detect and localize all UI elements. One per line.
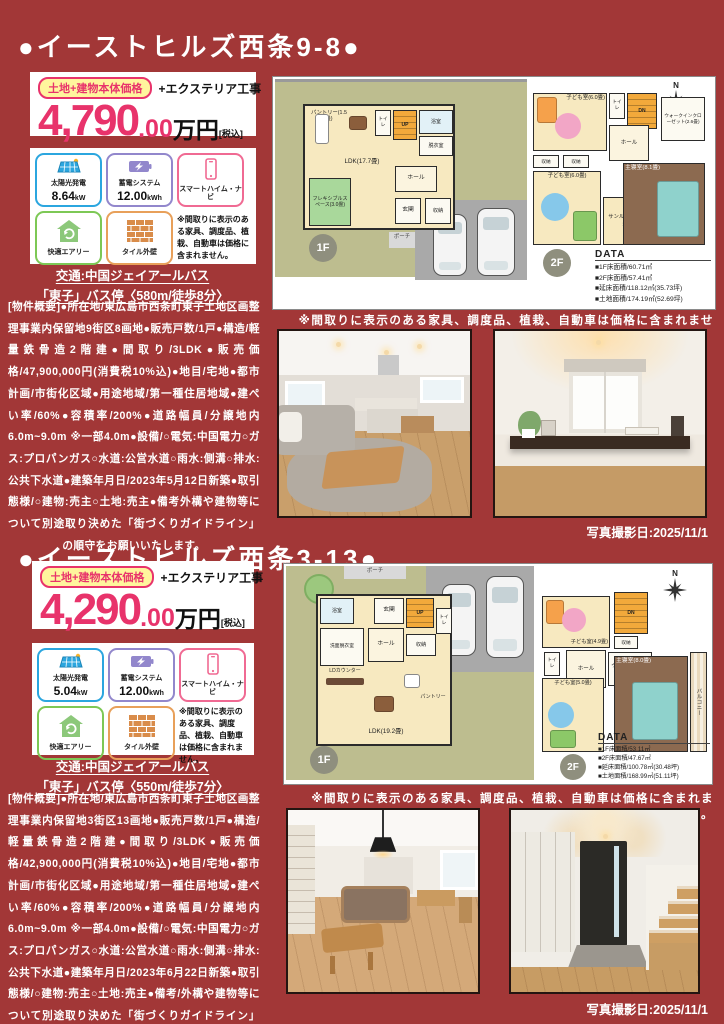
room-porch: ポーチ [344,566,406,579]
solar-label: 太陽光発電 [53,675,88,683]
stair-step [668,901,698,914]
feature-card-2: 太陽光発電 5.04kW 蓄電システム 12.00kWh スマートハイム・ナビ … [32,643,254,755]
battery-tile: 蓄電システム 12.00kWh [108,648,175,702]
price-plus-label: +エクステリア工事 [158,80,261,97]
price-amount: 4,790 [38,100,138,142]
data-title: DATA [598,732,710,744]
smart-navi-label: スマートハイム・ナビ [179,186,242,202]
room-storage-2f: 収納 [614,636,638,649]
room-ldk: LDK(17.7畳) [335,158,389,166]
stair-step [649,930,698,943]
smartphone-icon [205,653,221,680]
room-bath: 浴室 [320,598,354,624]
room-porch: ポーチ [389,232,415,248]
tile-wall-tile: タイル外壁 [106,211,173,265]
window [420,377,464,403]
room-entrance: 玄関 [395,198,421,224]
stair-step [659,916,698,929]
price-plus-label: +エクステリア工事 [160,569,263,586]
floorplan-panel-1: パントリー(1.5畳) UP トイレ 浴室 脱衣室 LDK(17.7畳) フレキ… [272,76,716,310]
throw-blanket [279,412,302,442]
feature-card-1: 太陽光発電 8.64kW 蓄電システム 12.00kWh スマートハイム・ナビ … [30,148,256,264]
price-unit: 万円 [175,607,221,631]
dining-table-icon [374,696,394,712]
battery-value: 12.00 [119,684,149,698]
floor2-badge: 2F [560,754,586,780]
room-hall-2f: ホール [609,125,649,161]
desk-counter [510,436,691,449]
room-washroom: 洗面脱衣室 [320,628,364,666]
price-decimal: .00 [138,117,173,142]
entrance-door [580,841,627,947]
section1-title: ●イーストヒルズ西条9-8● [18,27,362,64]
price-tax-label: [税込] [219,127,243,140]
price-amount: 4,290 [40,589,140,631]
window-frame [604,372,606,433]
pendant-cord [382,810,384,839]
data-box-2: DATA ■1F床面積/53.11㎡ ■2F床面積/47.67㎡ ■延床面積/1… [598,732,710,782]
coffee-table [321,446,405,490]
dining-table [417,890,455,906]
transit-line1: 交通:中国ジェイアールバス [5,266,260,286]
plant-pot [522,429,535,438]
airy-label: 快適エアリー [48,249,90,257]
solar-value: 8.64 [52,189,75,203]
property-description-2: [物件概要]●所在地/東広島市西条町東子土地区画整理事業内保留地3街区13画地●… [8,789,260,1024]
room-toilet: トイレ [436,608,452,634]
solar-value: 5.04 [54,684,77,698]
price-unit: 万円 [173,118,219,142]
smart-navi-tile: スマートハイム・ナビ [177,153,244,207]
floorplan-panel-2: ポーチ 浴室 玄関 UP トイレ 洗面脱衣室 ホール 収納 LDカウンター パン… [283,563,713,785]
table-leg [330,956,336,974]
battery-label: 蓄電システム [119,180,161,188]
room-hall: ホール [395,166,437,192]
data-row-land-area: ■土地面積/174.19㎡(52.69坪) [595,295,711,306]
data-title: DATA [595,249,711,261]
solar-panel-icon [56,158,82,179]
photo-living-room-2 [286,808,480,994]
room-bath: 浴室 [419,110,453,134]
north-label: N [661,82,691,90]
room-washroom: 脱衣室 [419,136,453,156]
floor2-badge: 2F [543,249,571,277]
bed-icon [537,97,557,123]
battery-icon [127,158,153,179]
car-icon [486,576,524,658]
smartphone-icon [203,158,219,185]
north-label: N [660,570,690,578]
photo-living-room-1 [277,329,472,518]
data-row-total-area: ■延床面積/100.78㎡(30.48坪) [598,764,710,773]
site-plan-1f: パントリー(1.5畳) UP トイレ 浴室 脱衣室 LDK(17.7畳) フレキ… [275,79,527,277]
photo-study-nook-1 [493,329,707,518]
sofa [341,886,409,922]
photo-entrance-hall-2 [509,808,700,994]
house-outline-1f: パントリー(1.5畳) UP トイレ 浴室 脱衣室 LDK(17.7畳) フレキ… [303,104,455,230]
kitchen-counter [315,114,329,144]
flyer-page: ●イーストヒルズ西条9-8● 土地+建物本体価格 +エクステリア工事 4,790… [0,0,724,1024]
room-flex-space: フレキシブルスペース(3.0畳) [309,178,351,226]
tile-wall-tile: タイル外壁 [108,706,175,760]
data-row-2f-area: ■2F床面積/47.67㎡ [598,755,710,764]
solar-unit: kW [75,195,86,202]
photo-date-caption-2: 写真撮影日:2025/11/1 [400,999,708,1018]
room-toilet: トイレ [375,110,391,136]
transit-line1: 交通:中国ジェイアールバス [5,757,260,777]
floor1-badge: 1F [310,746,338,774]
property-description-1: [物件概要]●所在地/東広島市西条町東子土地区画整理事業内保留地9街区8画地●販… [8,297,260,557]
room-hall: ホール [368,628,404,662]
room-ldk: LDK(19.2畳) [356,728,416,736]
data-row-1f-area: ■1F床面積/60.71㎡ [595,263,711,274]
battery-icon [129,653,155,674]
airy-label: 快適エアリー [50,744,92,752]
tile-wall-label: タイル外壁 [124,744,159,752]
airy-tile: 快適エアリー [37,706,104,760]
room-ld-counter: LDカウンター [322,668,368,674]
room-storage-2f: 収納 [533,155,559,168]
bed-icon [573,211,597,241]
room-stairs-up: UP [406,598,434,628]
tile-wall-label: タイル外壁 [122,249,157,257]
room-pantry: パントリー [414,694,452,700]
photo-date-caption-1: 写真撮影日:2025/11/1 [400,522,708,541]
battery-unit: kWh [149,690,164,697]
room-stairs-dn: DN [627,93,657,129]
data-row-1f-area: ■1F床面積/53.11㎡ [598,746,710,755]
battery-value: 12.00 [117,189,147,203]
room-toilet-2f: トイレ [544,652,560,676]
downlight [384,350,389,355]
solar-panel-icon [58,653,84,674]
room-stairs-dn: DN [614,592,648,634]
battery-tile: 蓄電システム 12.00kWh [106,153,173,207]
round-rug-icon [562,608,586,632]
floor1-badge: 1F [309,234,337,262]
room-toilet-2f: トイレ [609,93,625,119]
room-entrance: 玄関 [374,598,404,624]
compass-icon: N [660,570,690,604]
round-rug-icon [541,193,569,221]
smart-navi-tile: スマートハイム・ナビ [179,648,246,702]
round-rug-icon [555,113,581,139]
data-row-land-area: ■土地面積/168.99㎡(51.11坪) [598,773,710,782]
price-tax-label: [税込] [221,616,245,629]
solar-label: 太陽光発電 [51,180,86,188]
open-book [625,427,659,434]
house-outline-1f: 浴室 玄関 UP トイレ 洗面脱衣室 ホール 収納 LDカウンター パントリー … [316,594,452,746]
range-hood [378,355,399,375]
ceiling [279,331,470,375]
window-valance [564,359,646,372]
room-stairs-up: UP [393,110,417,140]
data-box-1: DATA ■1F床面積/60.71㎡ ■2F床面積/57.41㎡ ■延床面積/1… [595,249,711,306]
window [440,850,478,890]
smart-navi-label: スマートハイム・ナビ [181,681,244,697]
solar-unit: kW [77,690,88,697]
dining-table [401,416,433,433]
stair-base [649,943,698,970]
bed-icon [550,730,576,748]
solar-power-tile: 太陽光発電 5.04kW [37,648,104,702]
solar-power-tile: 太陽光発電 8.64kW [35,153,102,207]
brick-wall-icon [126,219,154,248]
bed-icon [657,181,699,237]
stair-step [677,886,698,899]
dining-chair [459,897,472,922]
price-card-1: 土地+建物本体価格 +エクステリア工事 4,790 .00 万円 [税込] [30,72,256,136]
kitchen-counter [404,674,420,688]
downlight [417,344,422,349]
compass-star-icon [663,578,687,602]
room-wic: ウォークインクローゼット(2.6畳) [661,97,705,141]
lamp-glow [372,850,395,859]
wood-floor [511,967,698,992]
brick-wall-icon [128,714,156,743]
car-icon [477,208,515,276]
door-glass-slit [614,846,620,937]
ld-counter-icon [326,678,364,685]
site-plan-1f: ポーチ 浴室 玄関 UP トイレ 洗面脱衣室 ホール 収納 LDカウンター パン… [286,566,534,780]
desk-lamp [671,416,684,436]
data-row-2f-area: ■2F床面積/57.41㎡ [595,274,711,285]
closet-wall [511,832,575,952]
price-card-2: 土地+建物本体価格 +エクステリア工事 4,290 .00 万円 [税込] [32,561,254,629]
dining-table-icon [349,116,367,130]
round-rug-icon [548,702,574,728]
battery-label: 蓄電システム [121,675,163,683]
photo-frame [541,420,556,437]
downlight [603,834,608,839]
airy-house-icon [58,714,84,743]
price-decimal: .00 [140,606,175,631]
battery-unit: kWh [147,195,162,202]
airy-house-icon [56,219,82,248]
feature-note: ※間取りに表示のある家具、調度品、植栽、自動車は価格に含まれません。 [177,214,251,262]
room-storage: 収納 [406,634,436,656]
room-storage: 収納 [425,198,451,224]
room-storage-2f: 収納 [563,155,589,168]
bookshelf [288,825,315,934]
data-row-total-area: ■延床面積/118.12㎡(35.73坪) [595,284,711,295]
airy-tile: 快適エアリー [35,211,102,265]
table-leg [368,952,374,970]
